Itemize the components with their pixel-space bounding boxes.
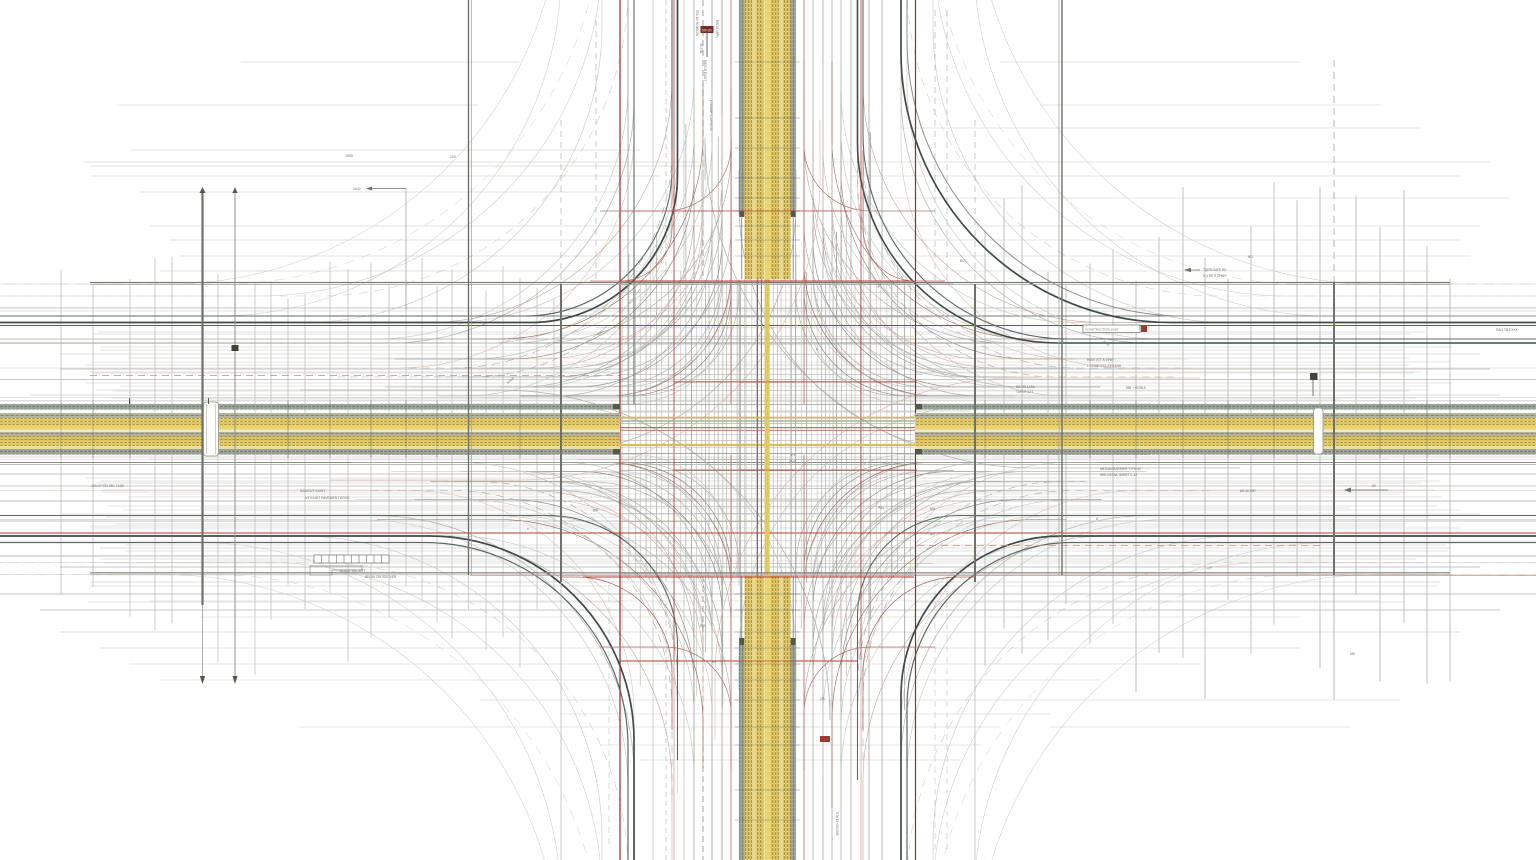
svg-text:BD: BD [960,259,965,263]
svg-text:STA 15+00 LINE: STA 15+00 LINE [835,812,839,836]
svg-text:SAWCUT EXIST: SAWCUT EXIST [300,489,325,493]
svg-text:M0: M0 [930,507,935,511]
svg-text:L5 RAMP 2 14+00.00: L5 RAMP 2 14+00.00 [709,100,713,131]
svg-text:BEGIN LANE: BEGIN LANE [1016,385,1035,389]
svg-text:EW3 7M EXXX: EW3 7M EXXX [1496,328,1518,332]
svg-text:1042: 1042 [353,187,361,191]
svg-text:60: 60 [1372,484,1376,488]
svg-text:25+8: 25+8 [789,459,796,463]
svg-text:5TA 10+50 BEGIN: 5TA 10+50 BEGIN [695,10,699,37]
svg-text:555 + 90 98 A: 555 + 90 98 A [1126,386,1147,390]
svg-text:TAPER 12:1: TAPER 12:1 [1016,390,1034,394]
svg-text:MATCH EXIST: MATCH EXIST [703,60,707,81]
svg-text:M0: M0 [1350,652,1355,656]
svg-text:BN: BN [930,532,935,536]
svg-text:1590: 1590 [345,154,353,158]
svg-text:BEGIN CROSSOVER: BEGIN CROSSOVER [365,575,397,579]
svg-text:NT EXIST PAVEMENT EDGE: NT EXIST PAVEMENT EDGE [305,496,350,500]
svg-text:BD: BD [1248,255,1253,259]
svg-text:100: 100 [450,155,456,159]
svg-text:SEE DETAIL SHEET C-12: SEE DETAIL SHEET C-12 [1100,473,1138,477]
svg-text:CONSTRUCTION LIMIT: CONSTRUCTION LIMIT [1085,328,1119,332]
svg-text:150.0 POD 450.7 NW: 150.0 POD 450.7 NW [91,484,125,488]
svg-text:e: e [816,347,818,351]
svg-text:2%: 2% [820,697,825,701]
svg-text:AB 46 890: AB 46 890 [1240,489,1256,493]
svg-text:L COMP STA 24+18.66: L COMP STA 24+18.66 [1087,364,1121,368]
svg-text:N 4 RE 9 OHWY: N 4 RE 9 OHWY [1203,274,1228,278]
svg-text:90+00: 90+00 [702,29,712,33]
svg-text:TBERLINER RD: TBERLINER RD [1203,268,1227,272]
svg-text:R50: R50 [700,624,706,628]
svg-text:EW 25 MPH: EW 25 MPH [715,20,719,38]
svg-text:SCALE 1IN=30FT: SCALE 1IN=30FT [340,569,366,573]
svg-text:JCT: JCT [790,453,796,457]
svg-text:MEDIAN BARRIER TYPE 60: MEDIAN BARRIER TYPE 60 [1100,467,1141,471]
svg-text:40 2%L: 40 2%L [699,43,703,54]
svg-text:R600 JCT A-LINE: R600 JCT A-LINE [1087,358,1114,362]
